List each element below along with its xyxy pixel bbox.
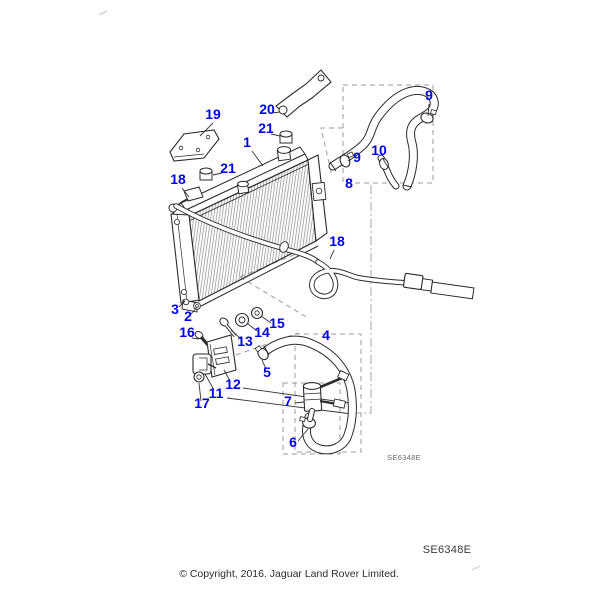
part-number-3: 3 (171, 301, 179, 317)
part-number-4: 4 (322, 327, 330, 343)
upper-hose-assembly (330, 90, 436, 187)
part-number-1: 1 (243, 134, 251, 150)
part-number-10: 10 (371, 142, 387, 158)
callout-5: 5 (262, 360, 271, 380)
callout-13: 13 (231, 330, 253, 349)
part-number-2: 2 (184, 308, 192, 324)
part-number-7: 7 (284, 393, 292, 409)
guide-diagonal-1 (240, 277, 308, 318)
callout-1: 1 (243, 134, 263, 166)
part-number-18b: 18 (329, 233, 345, 249)
callout-18b: 18 (329, 233, 345, 259)
diagram-code: SE6348E (423, 544, 472, 556)
copyright-text: © Copyright, 2016. Jaguar Land Rover Lim… (179, 568, 399, 580)
pipe-end-connector (403, 273, 475, 299)
grommet-21-right (280, 131, 292, 143)
washer-14 (236, 314, 249, 327)
exploded-parts-diagram: 12345678991011121314151617181819202121 S… (0, 0, 600, 600)
part-number-14: 14 (254, 324, 270, 340)
callout-2: 2 (184, 307, 197, 324)
callout-21a: 21 (213, 160, 236, 176)
part-number-5: 5 (263, 364, 271, 380)
callout-21b: 21 (258, 120, 280, 136)
part-number-6: 6 (289, 434, 297, 450)
corner-tick-bottom-right (472, 566, 480, 570)
radiator-illustration (171, 147, 327, 312)
part-number-19: 19 (205, 106, 221, 122)
bolt-13 (218, 316, 235, 336)
sensor-7 (303, 371, 348, 419)
bracket-19 (170, 130, 219, 161)
callout-leader-7 (295, 402, 304, 403)
bolt-16 (194, 330, 208, 345)
short-hose-10 (378, 157, 396, 186)
grommet-21-left (200, 168, 212, 180)
callout-20: 20 (259, 101, 280, 117)
part-number-9a: 9 (353, 149, 361, 165)
part-number-13: 13 (237, 333, 253, 349)
part-number-8: 8 (345, 175, 353, 191)
corner-tick-top-left (99, 11, 107, 15)
part-number-12: 12 (225, 376, 241, 392)
part-number-18a: 18 (170, 171, 186, 187)
top-port (237, 181, 248, 194)
part-number-9b: 9 (425, 87, 433, 103)
grommet-17 (194, 372, 204, 382)
part-number-16: 16 (179, 324, 195, 340)
part-number-17: 17 (194, 395, 210, 411)
bracket-20 (276, 70, 331, 117)
parts-diagram-canvas: 12345678991011121314151617181819202121 S… (0, 0, 600, 600)
diagram-code-small: SE6348E (387, 453, 421, 462)
center-dashdot-line (353, 185, 371, 413)
long-reference-line-1 (243, 388, 349, 403)
callout-leader-18b (330, 250, 334, 259)
part-number-15: 15 (269, 315, 285, 331)
filler-neck (277, 147, 290, 161)
part-number-21a: 21 (220, 160, 236, 176)
part-number-20: 20 (259, 101, 275, 117)
plug-15 (252, 308, 263, 319)
callout-8: 8 (345, 175, 353, 191)
part-number-21b: 21 (258, 120, 274, 136)
callout-4: 4 (322, 327, 330, 343)
callout-leader-1 (252, 151, 263, 166)
part-number-11: 11 (209, 385, 224, 401)
callout-18a: 18 (170, 171, 189, 197)
